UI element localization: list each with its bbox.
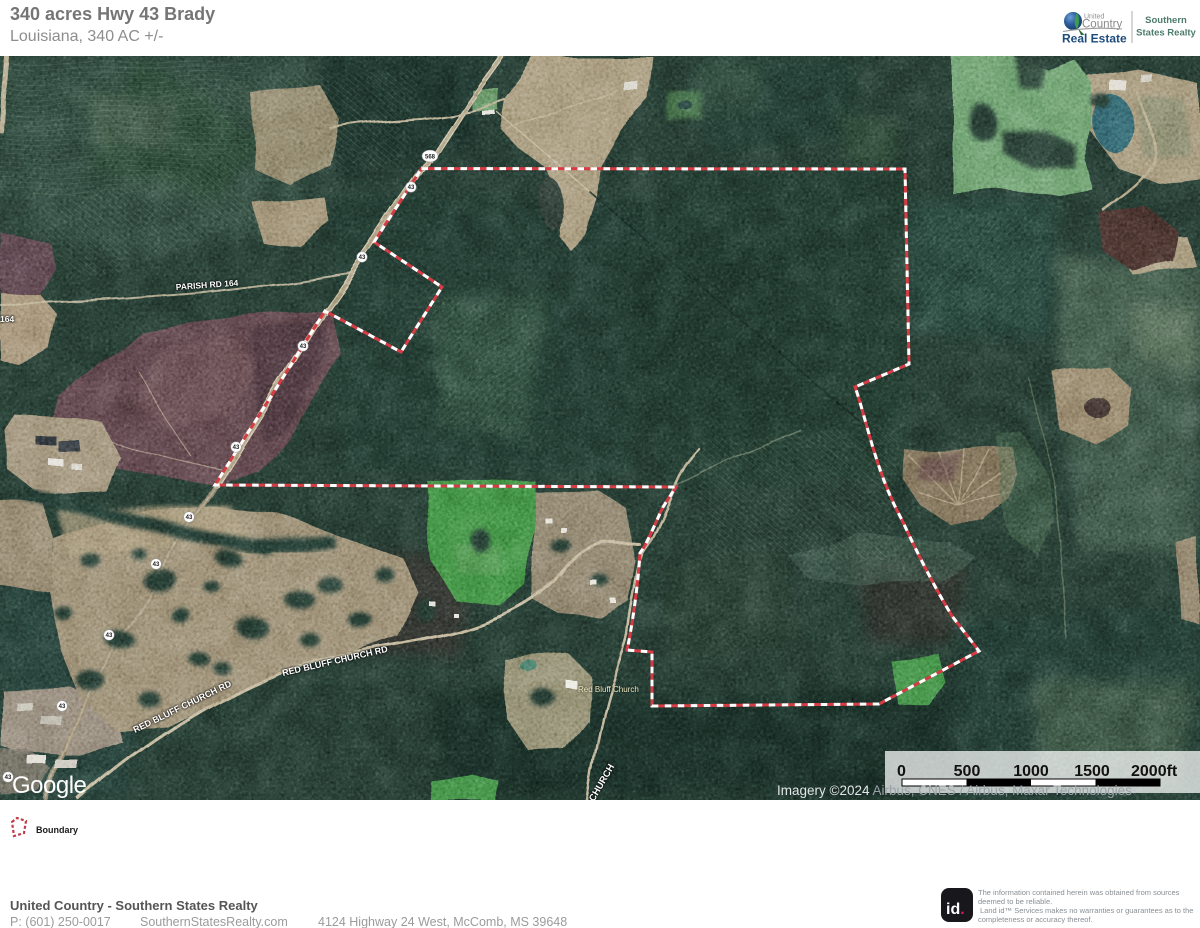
svg-text:43: 43 <box>359 255 366 261</box>
svg-text:43: 43 <box>186 515 193 521</box>
svg-text:43: 43 <box>59 704 66 710</box>
svg-text:2000ft: 2000ft <box>1131 763 1178 780</box>
svg-text:43: 43 <box>300 344 307 350</box>
svg-text:Land id™ Services makes no war: Land id™ Services makes no warranties or… <box>980 906 1193 915</box>
svg-text:Real Estate: Real Estate <box>1062 32 1127 46</box>
svg-text:Google: Google <box>12 772 87 799</box>
svg-text:164: 164 <box>0 314 14 324</box>
svg-text:The information contained here: The information contained herein was obt… <box>978 888 1180 897</box>
svg-text:1500: 1500 <box>1074 763 1110 780</box>
svg-text:Boundary: Boundary <box>36 825 78 835</box>
svg-text:United Country - Southern Stat: United Country - Southern States Realty <box>10 898 259 913</box>
svg-text:4124 Highway 24 West, McComb,: 4124 Highway 24 West, McComb, MS 39648 <box>318 915 567 928</box>
svg-text:SouthernStatesRealty.com: SouthernStatesRealty.com <box>140 915 288 928</box>
svg-text:0: 0 <box>897 763 906 780</box>
svg-text:Imagery ©2024 Airbus, CNES / A: Imagery ©2024 Airbus, CNES / Airbus, Max… <box>777 783 1132 798</box>
svg-text:Southern: Southern <box>1145 15 1187 26</box>
svg-text:43: 43 <box>5 775 12 781</box>
svg-text:43: 43 <box>233 445 240 451</box>
svg-text:id.: id. <box>946 901 965 918</box>
svg-text:43: 43 <box>408 185 415 191</box>
svg-text:completeness or accuracy there: completeness or accuracy thereof. <box>978 915 1093 924</box>
svg-text:States Realty: States Realty <box>1136 28 1196 39</box>
svg-text:deemed to be reliable.: deemed to be reliable. <box>978 897 1052 906</box>
svg-text:P: (601) 250-0017: P: (601) 250-0017 <box>10 915 111 928</box>
svg-text:43: 43 <box>106 633 113 639</box>
svg-text:Red Bluff Church: Red Bluff Church <box>578 685 639 694</box>
svg-text:43: 43 <box>153 562 160 568</box>
svg-text:500: 500 <box>954 763 981 780</box>
svg-text:568: 568 <box>425 154 436 160</box>
svg-text:1000: 1000 <box>1013 763 1049 780</box>
